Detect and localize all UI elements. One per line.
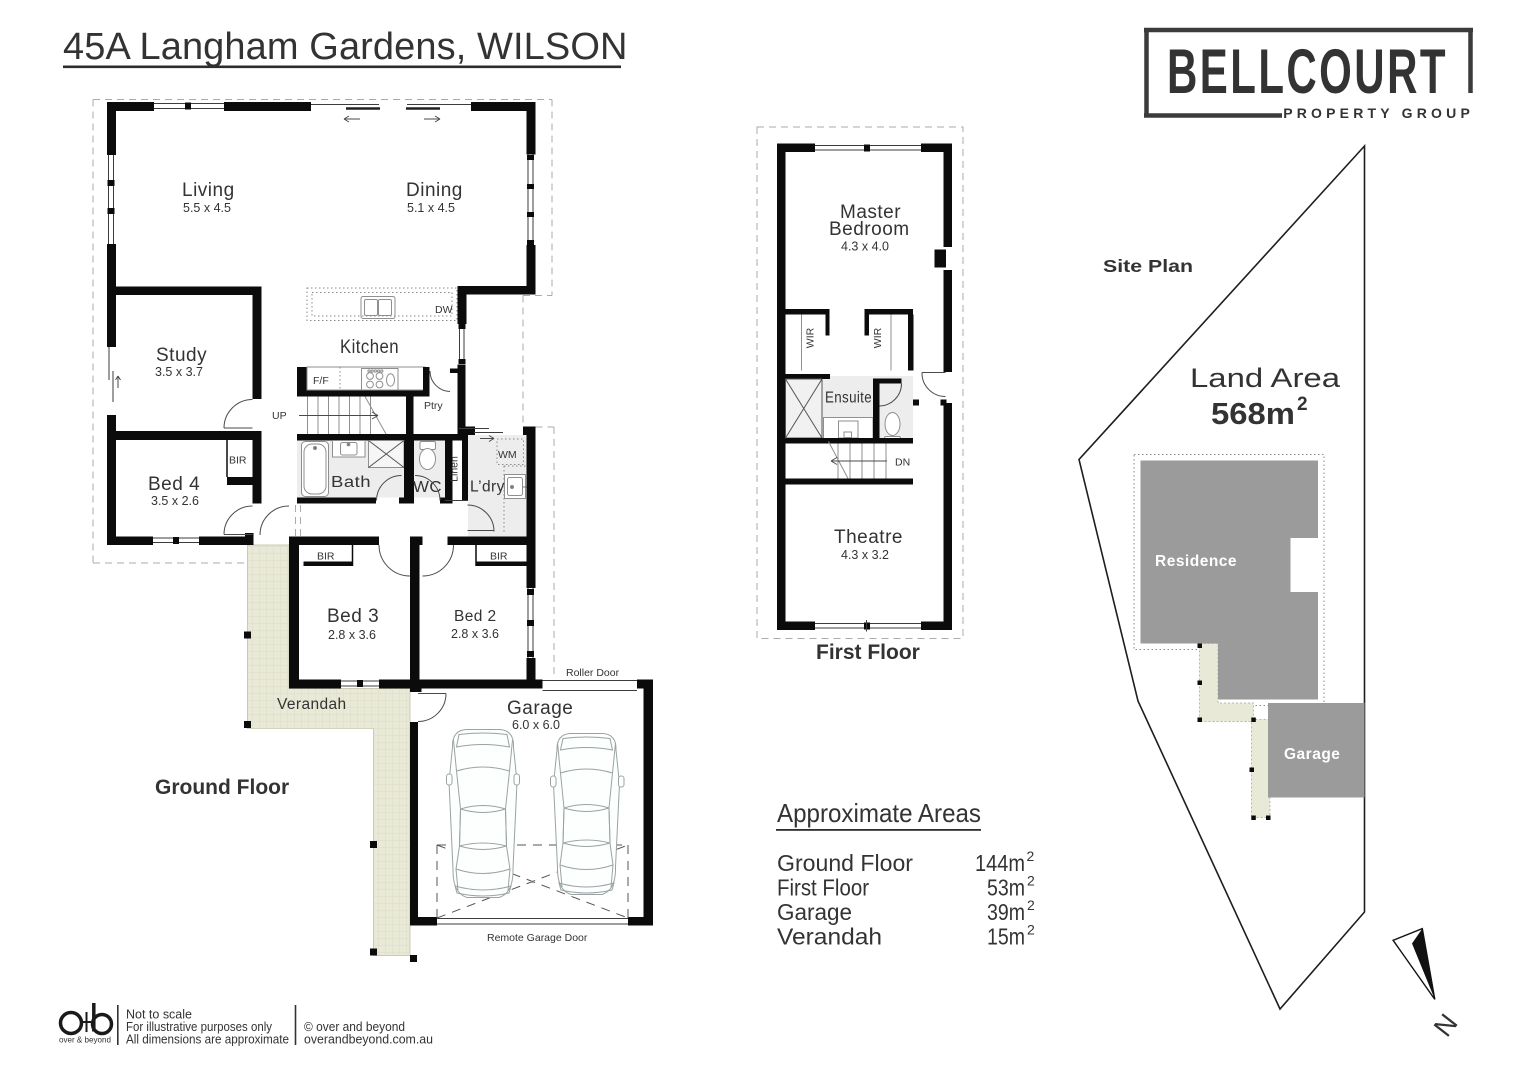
svg-text:15m: 15m xyxy=(987,924,1025,950)
svg-text:Ensuite: Ensuite xyxy=(825,390,872,407)
svg-text:2: 2 xyxy=(1027,873,1035,889)
svg-text:3.5 x 2.6: 3.5 x 2.6 xyxy=(151,494,199,508)
svg-text:First Floor: First Floor xyxy=(816,641,920,664)
svg-text:overandbeyond.com.au: overandbeyond.com.au xyxy=(304,1033,433,1047)
svg-text:PROPERTY GROUP: PROPERTY GROUP xyxy=(1283,105,1474,121)
svg-text:F/F: F/F xyxy=(313,375,329,387)
svg-text:WC: WC xyxy=(413,479,442,496)
svg-text:Study: Study xyxy=(156,345,207,366)
svg-text:45A Langham Gardens, WILSON: 45A Langham Gardens, WILSON xyxy=(63,26,628,68)
svg-text:UP: UP xyxy=(272,410,287,422)
svg-text:Kitchen: Kitchen xyxy=(340,337,399,358)
svg-text:Garage: Garage xyxy=(507,698,573,719)
svg-text:BIR: BIR xyxy=(229,455,247,467)
svg-text:Site Plan: Site Plan xyxy=(1103,256,1193,276)
svg-text:Residence: Residence xyxy=(1155,553,1237,570)
svg-text:Bath: Bath xyxy=(331,474,371,491)
svg-text:Verandah: Verandah xyxy=(277,696,347,713)
svg-text:5.1 x 4.5: 5.1 x 4.5 xyxy=(407,201,455,215)
svg-text:2.8 x 3.6: 2.8 x 3.6 xyxy=(451,627,499,641)
svg-text:Verandah: Verandah xyxy=(777,924,882,950)
svg-text:Theatre: Theatre xyxy=(834,527,903,548)
svg-text:2.8 x 3.6: 2.8 x 3.6 xyxy=(328,628,376,642)
svg-text:2: 2 xyxy=(1027,922,1035,938)
svg-text:DW: DW xyxy=(435,304,453,316)
svg-text:Land Area: Land Area xyxy=(1190,363,1341,393)
svg-text:2: 2 xyxy=(1027,897,1035,913)
svg-text:Bedroom: Bedroom xyxy=(829,219,910,240)
svg-text:2: 2 xyxy=(1027,848,1035,864)
svg-text:568m: 568m xyxy=(1211,396,1295,431)
svg-text:L’dry: L’dry xyxy=(470,479,505,496)
svg-text:39m: 39m xyxy=(987,899,1025,925)
svg-text:2: 2 xyxy=(1297,394,1308,415)
svg-text:First Floor: First Floor xyxy=(777,875,869,901)
svg-text:WIR: WIR xyxy=(805,327,817,348)
svg-text:Approximate Areas: Approximate Areas xyxy=(777,798,981,828)
svg-text:Ptry: Ptry xyxy=(424,400,443,412)
svg-text:Remote Garage Door: Remote Garage Door xyxy=(487,932,588,944)
svg-text:Garage: Garage xyxy=(1284,746,1340,763)
svg-text:Dining: Dining xyxy=(406,180,463,201)
svg-text:BIR: BIR xyxy=(317,551,335,563)
svg-text:Living: Living xyxy=(182,180,235,201)
svg-text:BIR: BIR xyxy=(490,551,508,563)
svg-text:Bed 4: Bed 4 xyxy=(148,474,200,495)
svg-text:over & beyond: over & beyond xyxy=(59,1036,111,1045)
svg-text:Roller Door: Roller Door xyxy=(566,667,620,679)
svg-text:Ground Floor: Ground Floor xyxy=(777,850,913,876)
svg-text:DN: DN xyxy=(895,457,910,469)
svg-text:Linen: Linen xyxy=(449,456,461,482)
svg-text:Ground Floor: Ground Floor xyxy=(155,776,289,799)
svg-text:WIR: WIR xyxy=(872,327,884,348)
svg-text:4.3 x 3.2: 4.3 x 3.2 xyxy=(841,548,889,562)
svg-text:WM: WM xyxy=(498,449,517,461)
svg-text:4.3 x 4.0: 4.3 x 4.0 xyxy=(841,240,889,254)
svg-text:Garage: Garage xyxy=(777,899,852,925)
svg-text:BELLCOURT: BELLCOURT xyxy=(1167,38,1449,107)
svg-text:5.5 x 4.5: 5.5 x 4.5 xyxy=(183,201,231,215)
svg-text:53m: 53m xyxy=(987,875,1025,901)
svg-text:6.0 x 6.0: 6.0 x 6.0 xyxy=(512,718,560,732)
svg-text:3.5 x 3.7: 3.5 x 3.7 xyxy=(155,365,203,379)
svg-text:144m: 144m xyxy=(975,850,1025,876)
svg-text:All dimensions are approximate: All dimensions are approximate xyxy=(126,1033,289,1047)
svg-text:Bed 2: Bed 2 xyxy=(454,608,497,625)
svg-text:Bed 3: Bed 3 xyxy=(327,606,379,627)
